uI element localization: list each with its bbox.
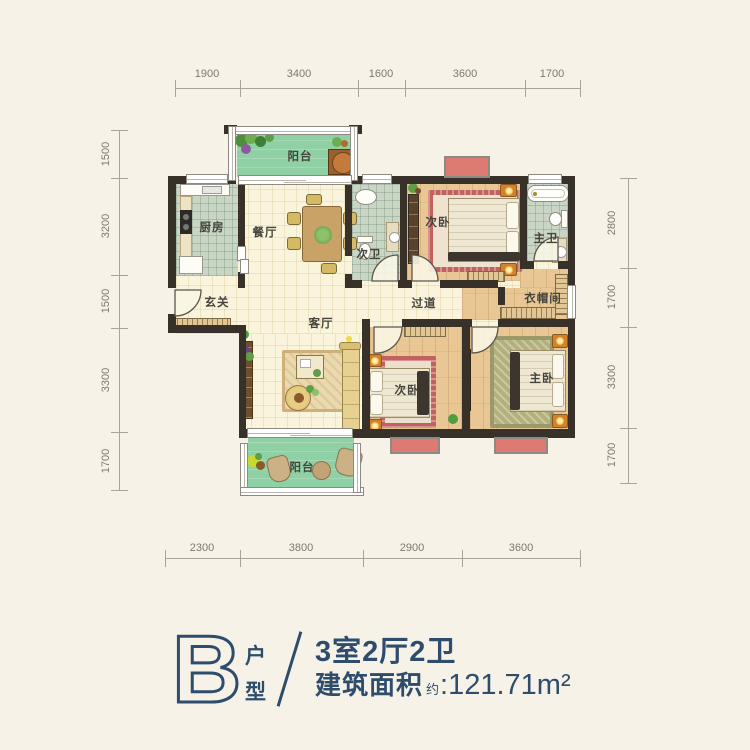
room-label-closet: 衣帽间 — [524, 290, 562, 306]
room-label-entry: 玄关 — [205, 294, 230, 310]
room-label-bedroom-second-bottom: 次卧 — [395, 382, 420, 398]
unit-type-char: 户 — [245, 640, 266, 670]
room-label-kitchen: 厨房 — [200, 219, 225, 235]
room-label-living: 客厅 — [309, 315, 334, 331]
area-value: :121.71m² — [440, 669, 571, 702]
room-label-bath-second: 次卫 — [357, 246, 382, 262]
room-label-dining: 餐厅 — [253, 224, 278, 240]
unit-letter: B — [172, 622, 239, 718]
area-approx: 约 — [426, 679, 439, 698]
floorplan-canvas: 1900 3400 1600 3600 1700 1500 3200 1500 … — [0, 0, 750, 750]
bedroom-door-icon — [374, 327, 402, 353]
room-label-balcony-bottom: 阳台 — [290, 459, 315, 475]
unit-type-char: 型 — [245, 676, 266, 706]
layout-text: 3室2厅2卫 — [315, 628, 456, 670]
area-text: 建筑面积 约 :121.71m² — [315, 665, 571, 702]
area-label: 建筑面积 — [315, 665, 423, 702]
room-label-corridor: 过道 — [412, 295, 437, 311]
room-label-bath-master: 主卫 — [534, 230, 559, 246]
entry-door-icon — [175, 290, 201, 316]
unit-type-label: 户 型 — [245, 640, 266, 706]
room-label-balcony-top: 阳台 — [288, 148, 313, 164]
master-door-icon — [472, 327, 498, 353]
room-label-bedroom-master: 主卧 — [530, 370, 555, 386]
room-label-bedroom-second-top: 次卧 — [426, 214, 451, 230]
bedroom-door-icon — [412, 255, 438, 281]
